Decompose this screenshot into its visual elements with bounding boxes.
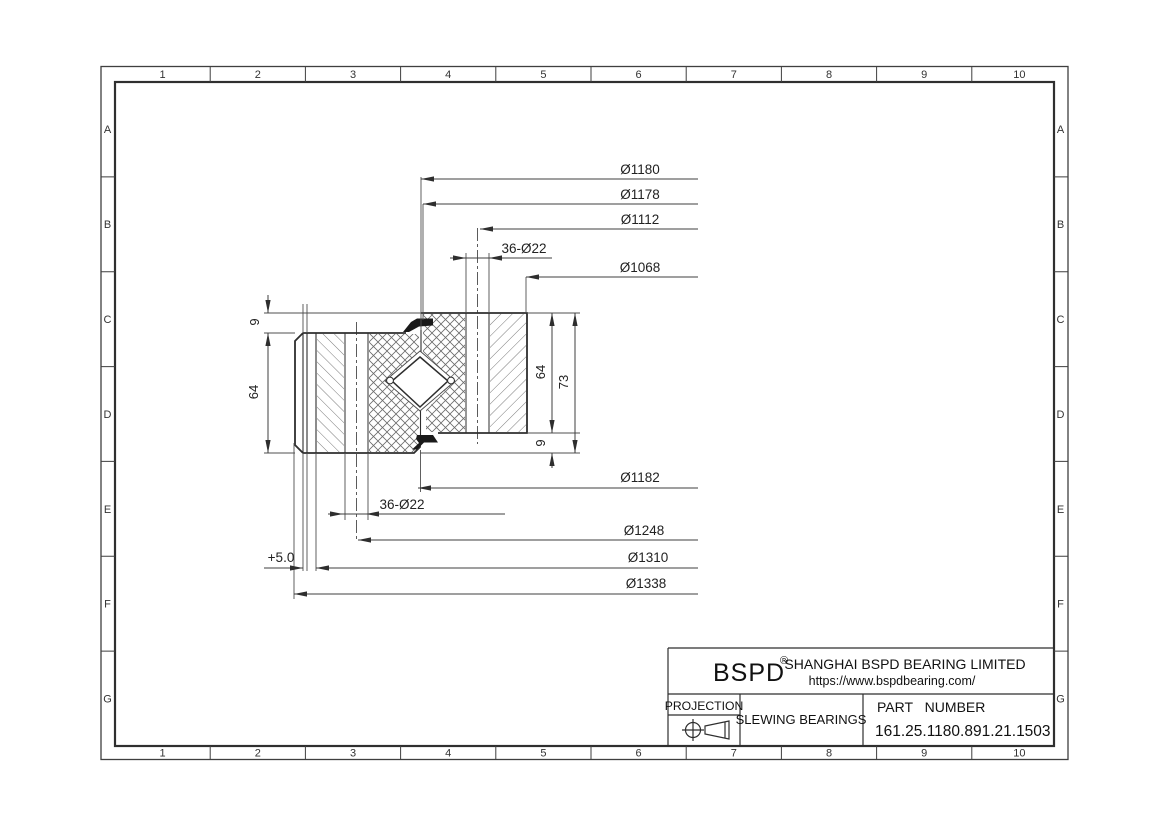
dim-label-od-1180: Ø1180 [620,162,660,177]
product-type: SLEWING BEARINGS [736,712,867,727]
dim-label-right-height-64: 64 [533,365,548,379]
grid-col-label: 7 [731,69,737,81]
company-website: https://www.bspdbearing.com/ [809,674,976,688]
grid-col-label: 10 [1013,748,1025,760]
company-logo: BSPD [713,659,785,687]
grid-labels-top: 1 2 3 4 5 6 7 8 9 10 [160,69,1026,81]
grid-row-label: C [104,314,112,326]
dim-label-total-height-73: 73 [556,375,571,389]
roller-pin-left [387,377,394,384]
grid-col-label: 1 [160,748,166,760]
dim-label-bore-1182: Ø1182 [620,470,660,485]
ext-od-bottom [294,443,316,599]
outer-ring-od-strip-lines [303,333,316,453]
grid-labels-left: A B C D E F G [103,124,112,706]
grid-col-label: 5 [540,69,546,81]
grid-row-label: G [1056,694,1065,706]
dim-label-bolt-circle-1248: Ø1248 [624,523,665,538]
grid-row-label: B [1057,219,1064,231]
grid-row-label: A [1057,124,1065,136]
grid-col-label: 10 [1013,69,1025,81]
grid-row-label: D [1057,409,1065,421]
grid-col-label: 6 [636,748,642,760]
dim-label-right-gap-9: 9 [533,439,548,446]
projection-symbol-icon [682,719,729,741]
dim-label-left-height-64: 64 [246,385,261,399]
grid-col-label: 6 [636,69,642,81]
grid-row-label: E [104,504,111,516]
grid-col-label: 2 [255,69,261,81]
dim-label-od-1178: Ø1178 [620,187,660,202]
grid-col-label: 3 [350,69,356,81]
dim-label-holes-top: 36-Ø22 [501,241,546,256]
grid-row-label: A [104,124,112,136]
part-number-label: PART NUMBER [877,699,985,715]
grid-row-label: F [104,599,111,611]
dim-label-od-1310: Ø1310 [628,550,669,565]
grid-row-label: D [104,409,112,421]
ext-od-strip-top [303,304,307,333]
grid-col-label: 9 [921,748,927,760]
grid-col-label: 3 [350,748,356,760]
grid-ticks-rows [101,177,1068,651]
grid-col-label: 4 [445,69,451,81]
grid-col-label: 8 [826,748,832,760]
dim-label-holes-bottom: 36-Ø22 [379,497,424,512]
dim-label-bore-1068: Ø1068 [620,260,661,275]
grid-col-label: 8 [826,69,832,81]
outer-ring-hatch-left [317,334,344,452]
dimensions: Ø1180 Ø1178 Ø1112 36-Ø22 Ø1068 Ø1182 36-… [246,162,698,597]
grid-row-label: C [1057,314,1065,326]
drawing-sheet: 1 2 3 4 5 6 7 8 9 10 1 2 3 4 5 6 7 8 9 1… [0,0,1170,827]
dim-label-od-1338: Ø1338 [626,576,667,591]
projection-crosshair [682,719,704,741]
inner-ring-hatch-right [490,314,526,432]
grid-col-label: 9 [921,69,927,81]
grid-labels-right: A B C D E F G [1056,124,1065,706]
dim-label-offset: +5.0 [268,550,295,565]
grid-col-label: 5 [540,748,546,760]
engineering-drawing: 1 2 3 4 5 6 7 8 9 10 1 2 3 4 5 6 7 8 9 1… [0,0,1170,827]
grid-col-label: 7 [731,748,737,760]
part-number-value: 161.25.1180.891.21.1503 [875,723,1051,740]
projection-label: PROJECTION [665,699,744,713]
grid-col-label: 2 [255,748,261,760]
grid-row-label: B [104,219,111,231]
inner-border [115,82,1054,746]
dim-label-bolt-circle-1112: Ø1112 [621,212,660,227]
dim-label-left-gap-9: 9 [247,318,262,325]
grid-row-label: E [1057,504,1064,516]
grid-row-label: F [1057,599,1064,611]
projection-cone [705,721,729,739]
ext-od-1180-1178 [421,177,423,330]
company-name: SHANGHAI BSPD BEARING LIMITED [784,656,1025,672]
grid-row-label: G [103,694,112,706]
grid-labels-bottom: 1 2 3 4 5 6 7 8 9 10 [160,748,1026,760]
grid-col-label: 4 [445,748,451,760]
roller-pin-right [448,377,455,384]
title-block: BSPD ® SHANGHAI BSPD BEARING LIMITED htt… [665,648,1054,746]
grid-col-label: 1 [160,69,166,81]
